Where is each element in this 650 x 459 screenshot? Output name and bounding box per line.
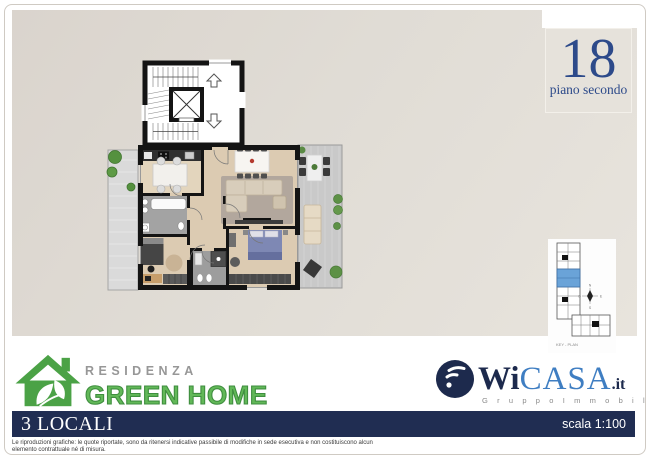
keyplan: N E S O KEY - PLAN: [548, 239, 616, 353]
agency-wordmark: WiCASA.it: [478, 361, 625, 398]
scale-label: scala 1:100: [562, 417, 626, 431]
footer-bar: 3 LOCALI scala 1:100: [12, 411, 635, 437]
floor-plan: [95, 50, 395, 310]
agency-tld: .it: [612, 376, 626, 393]
floor-number: 18: [561, 29, 617, 89]
brand-name: GREEN HOME: [85, 380, 268, 411]
rooms-label: 3 LOCALI: [21, 413, 113, 436]
keyplan-drawing: N E S O KEY - PLAN: [548, 239, 616, 353]
svg-text:O: O: [578, 295, 581, 299]
disclaimer-line2: elemento contrattuale né di misura.: [12, 447, 632, 454]
svg-text:N: N: [589, 284, 592, 288]
keyplan-caption: KEY - PLAN: [556, 342, 578, 347]
svg-text:E: E: [600, 295, 603, 299]
agency-wi: Wi: [478, 361, 520, 397]
brand-text: RESIDENZA GREEN HOME: [85, 364, 268, 411]
agency-subtitle: G r u p p o I m m o b i l i a r e: [482, 396, 636, 405]
wifi-icon: [436, 360, 474, 398]
floor-card: 18 piano secondo: [545, 28, 632, 113]
floor-label: piano secondo: [550, 82, 628, 98]
disclaimer: Le riproduzioni grafiche: le quote ripor…: [12, 440, 632, 453]
compass-icon: N E S O: [578, 284, 603, 311]
floor-card-notch: [542, 10, 638, 28]
terrace: [298, 145, 343, 288]
stairwell: [142, 60, 246, 146]
balcony-left: [107, 150, 138, 290]
elevator-icon: [171, 89, 202, 122]
agency-casa: CASA: [520, 361, 612, 397]
svg-text:S: S: [589, 306, 592, 310]
agency-logo: WiCASA.it G r u p p o I m m o b i l i a …: [436, 360, 636, 405]
flyer-page: { "floor_card": { "number": "18", "label…: [0, 0, 650, 459]
floor-plan-drawing: [95, 50, 395, 310]
brand-residenza: RESIDENZA: [85, 364, 268, 378]
green-house-icon: [14, 350, 82, 408]
